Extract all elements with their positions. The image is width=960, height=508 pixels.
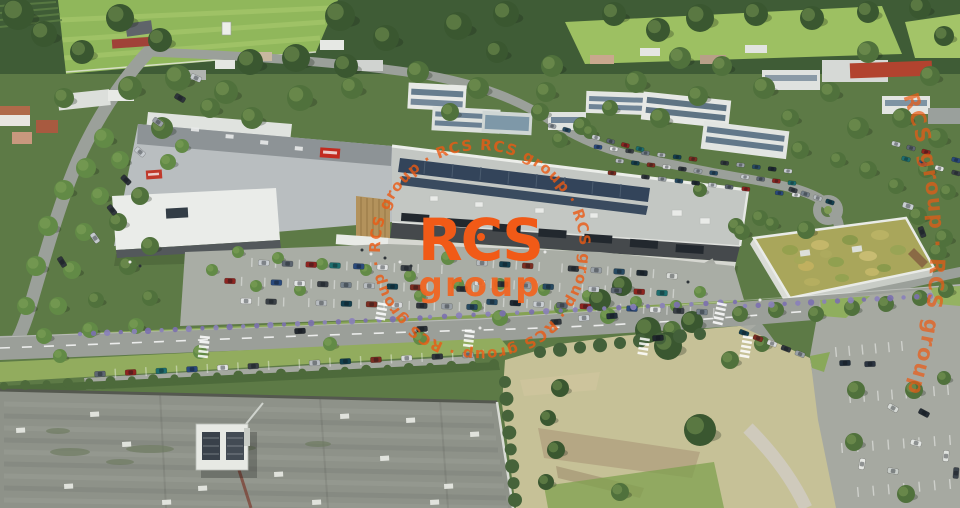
aerial-screenshot: RCS group · RCS group · RCS group · RCS … — [0, 0, 960, 508]
warehouse-roof — [0, 390, 513, 508]
logo-dot — [477, 233, 485, 241]
aerial-image: RCS group · RCS group · RCS group · RCS … — [0, 0, 960, 508]
red-roof-building — [850, 61, 932, 79]
storefront-sign — [320, 147, 341, 158]
storefront-sign-2 — [146, 169, 163, 179]
watermark-logo-sub: group — [418, 265, 541, 305]
field-structure — [222, 22, 231, 35]
hvac-unit — [196, 424, 257, 478]
